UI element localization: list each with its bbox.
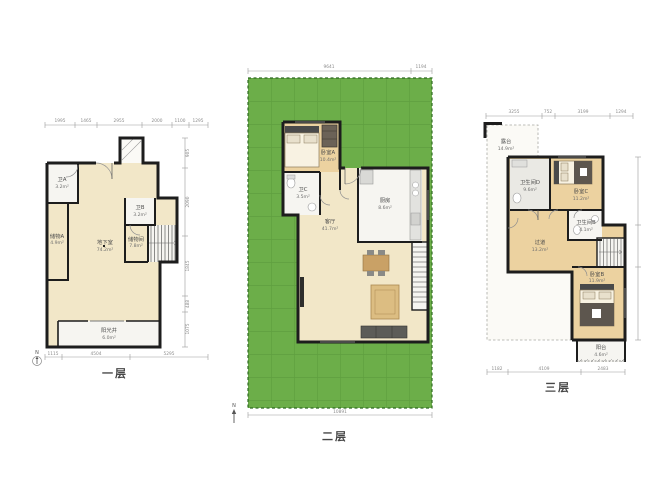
room-label-bath-a: 卫A	[58, 176, 67, 183]
room-area-bath-d: 9.6m²	[523, 187, 537, 193]
dim-value: 1075	[185, 323, 191, 334]
floor2-stairs	[412, 242, 428, 310]
room-area-bath-a: 3.2m²	[55, 184, 69, 190]
room-area-sunwell: 6.0m²	[102, 335, 116, 341]
room-area-living: 41.7m²	[322, 226, 339, 232]
room-area-storage-a: 4.9m²	[50, 240, 64, 246]
floorplan-page: 1995 1465 2955 2000 1100 1295	[0, 0, 667, 500]
room-label-bath-b: 卫B	[136, 204, 145, 211]
room-label-storage-a: 储物A	[50, 232, 65, 240]
floor3-dims-right	[635, 157, 641, 340]
dim-value: 4504	[91, 351, 102, 357]
room-area-hall: 13.2m²	[532, 247, 549, 253]
dim-value: 1194	[416, 64, 427, 70]
dim-value: 10891	[333, 409, 347, 415]
room-label-bedroom-b: 卧室B	[590, 270, 605, 278]
room-label-bath-d: 卫生间D	[520, 178, 540, 186]
dim-value: 3255	[509, 109, 520, 115]
room-area-bedroom-a: 10.4m²	[320, 157, 337, 163]
floor2-plan: 9641 1194	[225, 55, 445, 450]
room-label-storage: 储物间	[128, 235, 144, 243]
room-label-basement: 地下室	[97, 238, 113, 246]
room-area-bedroom-b: 11.9m²	[589, 278, 606, 284]
floor1-plan: 1995 1465 2955 2000 1100 1295	[30, 105, 220, 395]
room-label-sunwell: 阳光井	[101, 326, 117, 334]
dim-value: 1182	[492, 366, 503, 372]
floor3-stairs	[597, 238, 625, 267]
dim-value: 1294	[616, 109, 627, 115]
dim-value: 4109	[539, 366, 550, 372]
room-label-kitchen: 厨房	[380, 196, 391, 204]
room-area-kitchen: 8.6m²	[378, 205, 392, 211]
room-area-bath-c: 3.5m²	[296, 194, 310, 200]
dim-value: 1995	[55, 118, 66, 124]
room-label-bath-b3: 卫生间B	[576, 218, 596, 226]
compass-n-label: N	[35, 350, 39, 356]
room-bath-b	[125, 198, 155, 225]
dim-value: 3199	[578, 109, 589, 115]
floor1-dims-bottom	[45, 354, 208, 360]
dim-value: 9641	[324, 64, 335, 70]
room-label-bedroom-c: 卧室C	[574, 187, 589, 195]
room-area-storage: 7.8m²	[129, 243, 143, 249]
room-label-bath-c: 卫C	[299, 186, 308, 193]
floor2-title: 二层	[322, 430, 348, 443]
dim-value: 1100	[175, 118, 186, 124]
dim-value: 1465	[81, 118, 92, 124]
room-label-balcony: 阳台	[596, 343, 607, 351]
dim-value: 5295	[164, 351, 175, 357]
floor1-dims-right	[182, 138, 188, 347]
dim-value: 488	[185, 300, 191, 308]
room-bath-a	[47, 163, 78, 203]
floor1-title: 一层	[102, 367, 128, 380]
room-balcony	[577, 340, 625, 362]
dim-value: 1295	[193, 118, 204, 124]
floor3-plan: 3255 752 3199 1294	[478, 98, 650, 398]
dim-value: 2090	[185, 196, 191, 207]
dim-value: 2000	[152, 118, 163, 124]
floor3-title: 三层	[545, 381, 571, 394]
room-label-bedroom-a: 卧室A	[321, 148, 336, 156]
room-area-bath-b3: 4.1m²	[579, 227, 593, 233]
floor2-compass-icon: N	[232, 403, 236, 423]
room-area-terrace: 14.9m²	[498, 146, 515, 152]
room-area-bath-b: 3.2m²	[133, 212, 147, 218]
room-label-living: 客厅	[325, 217, 336, 225]
dim-value: 2483	[598, 366, 609, 372]
floor2-dims-top	[248, 68, 432, 74]
dim-value: 2955	[114, 118, 125, 124]
room-area-balcony: 4.6m²	[594, 352, 608, 358]
room-area-basement: 74.2m²	[97, 247, 114, 253]
room-label-hall: 过道	[535, 238, 546, 246]
dim-value: 752	[544, 109, 552, 115]
dim-value: 1115	[48, 351, 59, 357]
room-area-bedroom-c: 11.2m²	[573, 196, 590, 202]
room-label-terrace: 露台	[501, 137, 512, 145]
room-sunwell	[58, 321, 160, 347]
room-stairs	[148, 225, 177, 262]
dim-value: 1845	[185, 260, 191, 271]
floor1-compass-icon: N	[33, 350, 42, 366]
compass-n-label: N	[232, 403, 236, 409]
dim-value: 905	[185, 149, 191, 157]
